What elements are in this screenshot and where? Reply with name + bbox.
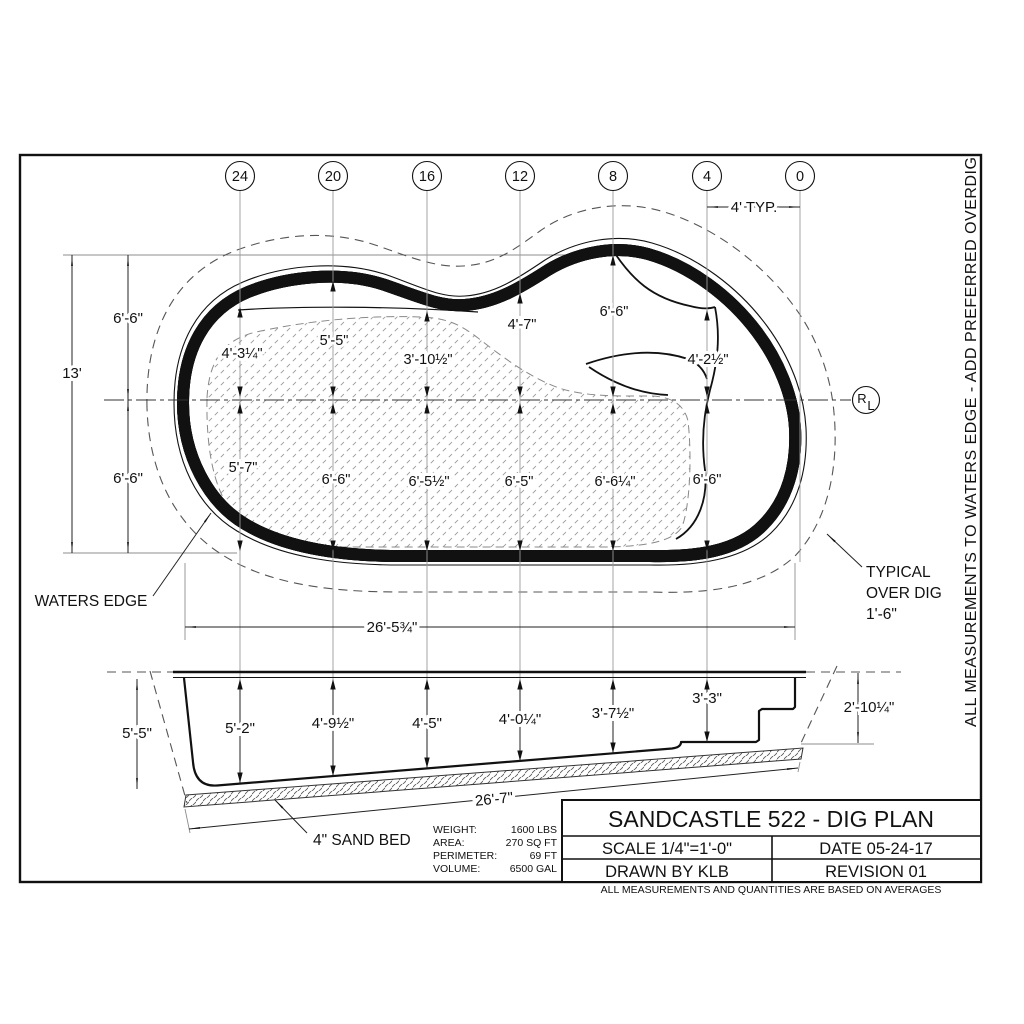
sand-bed-label: 4" SAND BED xyxy=(313,832,411,849)
height-upper-dim: 6'-6" xyxy=(113,310,143,327)
section-depth: 3'-3" xyxy=(692,690,722,707)
section-depth: 3'-7½" xyxy=(592,705,634,722)
sheet-drawn-by: DRAWN BY KLB xyxy=(605,863,729,881)
section-arrow-top xyxy=(517,679,522,690)
overdig-leader xyxy=(827,534,862,567)
section-arrow-top xyxy=(704,679,709,690)
section-depth: 5'-2" xyxy=(225,720,255,737)
section-length: 26'-7" xyxy=(474,789,514,810)
title-block: SANDCASTLE 522 - DIG PLAN SCALE 1/4"=1'-… xyxy=(562,800,981,882)
plan-depth-upper: 3'-10½" xyxy=(403,352,452,368)
plan-arrow-bottom xyxy=(237,541,242,552)
disclaimer: ALL MEASUREMENTS AND QUANTITIES ARE BASE… xyxy=(601,884,942,896)
plan-arrow-top xyxy=(704,310,709,321)
plan-arrow-top xyxy=(424,311,429,322)
overdig-note-line2: OVER DIG xyxy=(866,585,942,602)
section-arrow-bottom xyxy=(517,751,522,762)
grid-label-8: 8 xyxy=(609,169,617,185)
overdig-note-line1: TYPICAL xyxy=(866,564,931,581)
sheet-scale: SCALE 1/4"=1'-0" xyxy=(602,840,732,858)
section-arrow-bottom xyxy=(330,766,335,777)
plan-depth-lower: 6'-6" xyxy=(693,472,722,488)
sheet-revision: REVISION 01 xyxy=(825,863,927,881)
stat-value: 270 SQ FT xyxy=(506,837,558,849)
stat-value: 69 FT xyxy=(530,850,558,862)
width-dim: 26'-5¾" xyxy=(367,619,418,636)
plan-depth-upper: 5'-5" xyxy=(320,333,349,349)
plan-depth-lower: 6'-5½" xyxy=(409,474,450,490)
sheet-date: DATE 05-24-17 xyxy=(819,840,932,858)
stat-value: 6500 GAL xyxy=(510,863,557,875)
section-arrow-bottom xyxy=(704,732,709,743)
grid-label-20: 20 xyxy=(325,169,341,185)
section-left-depth: 5'-5" xyxy=(122,725,152,742)
section-depth: 4'-9½" xyxy=(312,715,354,732)
stat-label: WEIGHT: xyxy=(433,824,477,836)
plan-depth-upper: 6'-6" xyxy=(600,304,629,320)
section-arrow-bottom xyxy=(610,743,615,754)
stats-block: WEIGHT:1600 LBSAREA:270 SQ FTPERIMETER:6… xyxy=(433,824,558,875)
plan-depth-upper: 4'-2½" xyxy=(688,352,729,368)
section-arrow-top xyxy=(237,679,242,690)
section-depth: 4'-0¼" xyxy=(499,711,541,728)
section-arrow-top xyxy=(610,679,615,690)
plan-arrow-top xyxy=(610,255,615,266)
plan-depth-lower: 6'-6" xyxy=(322,472,351,488)
section-arrow-bottom xyxy=(424,758,429,769)
grid-label-16: 16 xyxy=(419,169,435,185)
centerline-symbol-l: L xyxy=(867,398,874,413)
grid-label-24: 24 xyxy=(232,169,248,185)
grid-spacing-dim: 4' TYP. xyxy=(731,199,778,216)
centerline-symbol-r: R xyxy=(857,391,866,406)
waters-edge-label: WATERS EDGE xyxy=(35,593,148,610)
stat-label: AREA: xyxy=(433,837,465,849)
overdig-slope-right xyxy=(801,666,837,743)
grid-label-0: 0 xyxy=(796,169,804,185)
stat-label: PERIMETER: xyxy=(433,850,497,862)
grid-label-12: 12 xyxy=(512,169,528,185)
section-arrow-top xyxy=(424,679,429,690)
section-depth: 4'-5" xyxy=(412,715,442,732)
stat-value: 1600 LBS xyxy=(511,824,557,836)
plan-depth-lower: 5'-7" xyxy=(229,460,258,476)
section-arrow-bottom xyxy=(237,773,242,784)
plan-depth-lower: 6'-6¼" xyxy=(595,474,636,490)
overdig-slope-left xyxy=(150,671,187,803)
grid-label-4: 4 xyxy=(703,169,711,185)
side-note: ALL MEASUREMENTS TO WATERS EDGE - ADD PR… xyxy=(963,157,980,727)
height-total-dim: 13' xyxy=(62,365,82,382)
plan-arrow-mid-lower xyxy=(704,403,709,414)
waters-edge-leader xyxy=(153,513,211,596)
sheet-title: SANDCASTLE 522 - DIG PLAN xyxy=(608,806,934,832)
plan-depth-upper: 4'-7" xyxy=(508,317,537,333)
section-right-depth: 2'-10¼" xyxy=(844,699,895,716)
dig-plan-sheet: R L 24201612840 4'-3¼"5'-5"3'-10½"4'-7"6… xyxy=(0,0,1024,1024)
overdig-note-line3: 1'-6" xyxy=(866,606,897,623)
plan-arrow-top xyxy=(237,307,242,318)
plan-depth-upper: 4'-3¼" xyxy=(222,346,263,362)
ext-line-length-right xyxy=(798,762,800,772)
height-lower-dim: 6'-6" xyxy=(113,470,143,487)
sand-bed-leader xyxy=(275,800,307,833)
section-arrow-top xyxy=(330,679,335,690)
stat-label: VOLUME: xyxy=(433,863,480,875)
plan-depth-lower: 6'-5" xyxy=(505,474,534,490)
drawing-canvas: R L 24201612840 4'-3¼"5'-5"3'-10½"4'-7"6… xyxy=(0,0,1024,1024)
